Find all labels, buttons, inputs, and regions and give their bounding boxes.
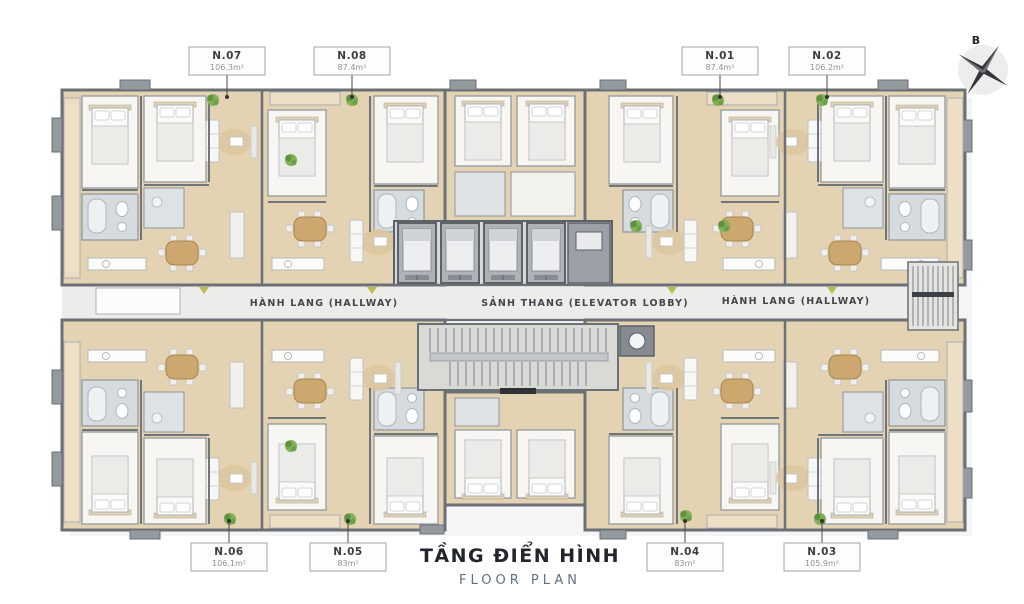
unit-id: N.08 [337, 50, 366, 62]
unit-area: 105.9m² [805, 559, 839, 568]
unit-area: 87.4m² [706, 63, 735, 72]
page-subtitle: FLOOR PLAN [459, 573, 581, 588]
unit-id: N.03 [807, 546, 836, 558]
page-title: TẦNG ĐIỂN HÌNH [420, 541, 620, 567]
elevator-icon [398, 223, 436, 283]
unit-id: N.06 [214, 546, 243, 558]
elevator-icon [441, 223, 479, 283]
elevator-bank [394, 221, 612, 285]
unit-id: N.04 [670, 546, 699, 558]
unit-id: N.01 [705, 50, 734, 62]
left-stair-landing [96, 288, 180, 314]
hallway-left-label: HÀNH LANG (HALLWAY) [250, 297, 399, 309]
unit-area: 87.4m² [338, 63, 367, 72]
elevator-lobby-label: SẢNH THANG (ELEVATOR LOBBY) [481, 297, 689, 309]
unit-area: 106.1m² [212, 559, 246, 568]
floor-plan-image: HÀNH LANG (HALLWAY) SẢNH THANG (ELEVATOR… [0, 0, 1024, 604]
unit-area: 83m² [674, 559, 695, 568]
elevator-icon [527, 223, 565, 283]
unit-id: N.05 [333, 546, 362, 558]
hallway-right-label: HÀNH LANG (HALLWAY) [722, 295, 871, 307]
floor-plan-page: HÀNH LANG (HALLWAY) SẢNH THANG (ELEVATOR… [0, 0, 1024, 604]
compass-north-label: B [972, 34, 980, 47]
unit-area: 83m² [337, 559, 358, 568]
unit-id: N.07 [212, 50, 241, 62]
unit-id: N.02 [812, 50, 841, 62]
elevator-icon [484, 223, 522, 283]
central-staircase-icon [418, 324, 654, 394]
unit-area: 106.2m² [810, 63, 844, 72]
unit-area: 106.3m² [210, 63, 244, 72]
right-staircase-icon [908, 262, 958, 330]
